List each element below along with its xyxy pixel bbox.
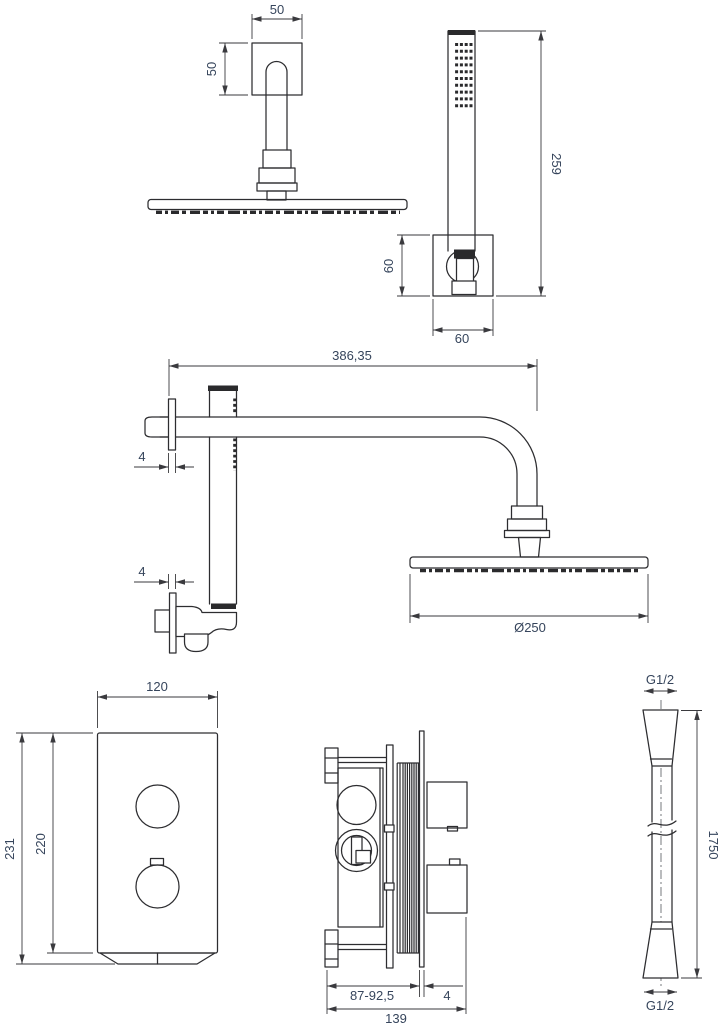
hand-shower-cap (448, 30, 475, 35)
dim-lower-flange-thickness: 4 (138, 564, 145, 579)
rail-clip-lower (385, 883, 395, 890)
view-thermostat-front: 120 231 220 (2, 679, 218, 964)
dim-plate-width: 120 (146, 679, 168, 694)
connector-ring (259, 168, 295, 183)
wall-outlet-holder (155, 593, 237, 653)
connector-collar (257, 183, 297, 191)
dim-hand-shower-length: 259 (549, 153, 564, 175)
valve-port-circle (337, 786, 376, 825)
upper-knob-side (427, 782, 467, 828)
dim-total-depth: 139 (385, 1011, 407, 1026)
arm-nut (512, 506, 543, 519)
depth-adjust-ribs (397, 763, 419, 953)
view-shower-hose: G1/2 1750 G1/2 (643, 672, 721, 1013)
cartridge-slot-horizontal (356, 851, 371, 864)
dim-ceiling-plate-height: 50 (204, 62, 219, 76)
arm-ring (508, 519, 547, 531)
connector-nut (263, 150, 291, 168)
dim-plate-height: 220 (33, 833, 48, 855)
mount-tab-top (325, 748, 338, 783)
thermostat-face-plate (98, 733, 218, 953)
mount-tab-bottom (325, 930, 338, 967)
shower-head-disc (410, 557, 648, 568)
ceiling-plate (252, 43, 302, 95)
dim-head-diameter: Ø250 (514, 620, 546, 635)
head-neck (519, 538, 541, 558)
head-neck (267, 191, 286, 200)
hand-shower-side (208, 386, 238, 605)
dim-bracket-width: 60 (455, 331, 469, 346)
lower-knob-side (427, 865, 467, 913)
technical-drawing-page: 50 50 259 (0, 0, 722, 1030)
lower-knob-tab-side (450, 859, 461, 865)
lower-knob-tab (151, 859, 164, 866)
view-ceiling-shower-head: 50 50 (148, 2, 407, 212)
hose-nut-top (643, 710, 678, 766)
handle-bottom-band (211, 604, 236, 610)
rail-clip-upper (385, 825, 395, 832)
wall-flange-lower (170, 593, 177, 653)
arm-collar (505, 531, 550, 538)
upper-knob-tab (448, 827, 458, 832)
dim-plate-thickness: 4 (443, 988, 450, 1003)
hand-shower-nozzle-grid (457, 43, 471, 110)
arm-inlet-cap (145, 417, 168, 437)
mount-screw-rail (387, 745, 394, 968)
upper-knob (136, 785, 179, 828)
hose-nut-bottom (643, 922, 678, 978)
dim-bracket-height: 60 (381, 259, 396, 273)
wall-flange-upper (169, 399, 176, 450)
holder-body (176, 607, 237, 638)
dim-install-depth: 87-92,5 (350, 988, 394, 1003)
holder-knob (185, 634, 209, 652)
handle-in-holder (457, 259, 474, 282)
view-thermostat-side: 87-92,5 4 139 (325, 731, 467, 1026)
dim-top-thread: G1/2 (646, 672, 674, 687)
dim-arm-length: 386,35 (332, 348, 372, 363)
dim-bottom-thread: G1/2 (646, 998, 674, 1013)
shower-set-technical-drawing: 50 50 259 (0, 0, 722, 1030)
ceiling-head-disc (148, 200, 407, 210)
holder-base (452, 281, 476, 295)
shower-arm-outer (160, 417, 537, 506)
dim-total-height: 231 (2, 838, 17, 860)
shower-arm-inner (160, 437, 517, 506)
handle-shadow-band (454, 250, 475, 259)
dim-ceiling-plate-width: 50 (270, 2, 284, 17)
ceiling-arm-dome (266, 62, 287, 96)
view-wall-arm-assembly: 386,35 4 4 Ø250 (134, 348, 648, 653)
dim-hose-length: 1750 (706, 831, 721, 860)
view-hand-shower: 259 60 60 (381, 30, 564, 346)
outlet-nipple (155, 610, 170, 632)
face-plate-side (420, 731, 425, 967)
lower-knob (136, 865, 179, 908)
dim-upper-flange-thickness: 4 (138, 449, 145, 464)
